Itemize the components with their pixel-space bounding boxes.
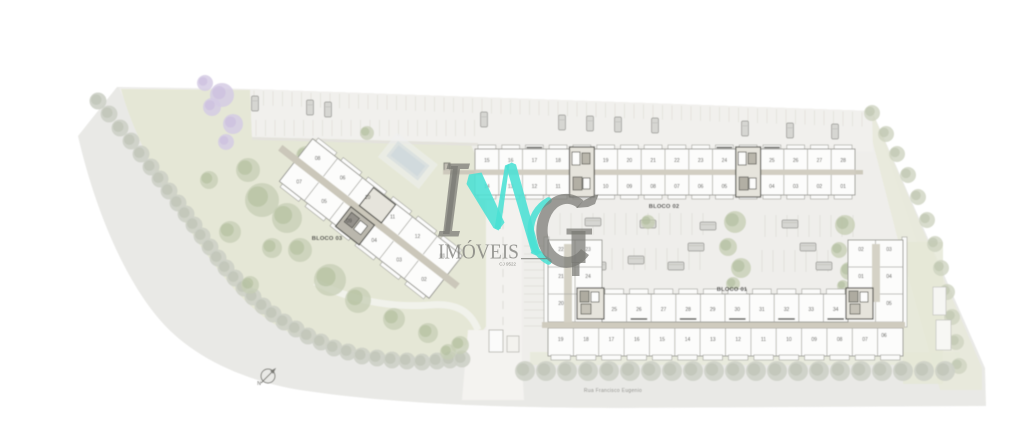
svg-text:33: 33	[808, 307, 814, 313]
svg-text:Rua Francisco Eugenio: Rua Francisco Eugenio	[584, 388, 642, 394]
svg-text:25: 25	[769, 158, 775, 164]
svg-text:IMÓVEIS: IMÓVEIS	[438, 240, 519, 264]
svg-text:17: 17	[609, 337, 615, 343]
svg-text:09: 09	[346, 219, 352, 225]
svg-text:31: 31	[759, 307, 765, 313]
svg-text:11: 11	[390, 214, 395, 220]
svg-text:19: 19	[558, 337, 564, 343]
svg-text:06: 06	[881, 333, 887, 339]
svg-text:06: 06	[340, 175, 346, 181]
svg-text:30: 30	[735, 307, 741, 313]
svg-text:04: 04	[371, 238, 377, 244]
svg-text:28: 28	[685, 307, 691, 313]
svg-text:01: 01	[840, 184, 846, 190]
svg-text:24: 24	[585, 274, 591, 280]
svg-text:22: 22	[674, 158, 680, 164]
svg-text:03: 03	[396, 258, 402, 264]
svg-text:11: 11	[555, 184, 560, 190]
svg-text:08: 08	[837, 337, 843, 343]
svg-text:15: 15	[484, 158, 490, 164]
svg-text:28: 28	[840, 158, 846, 164]
svg-text:06: 06	[698, 184, 704, 190]
svg-text:14: 14	[685, 337, 691, 343]
svg-text:18: 18	[555, 158, 561, 164]
svg-text:21: 21	[650, 158, 656, 164]
svg-text:11: 11	[761, 337, 766, 343]
svg-text:13: 13	[710, 337, 716, 343]
svg-text:05: 05	[886, 301, 892, 307]
svg-text:27: 27	[817, 158, 823, 164]
svg-text:19: 19	[603, 158, 609, 164]
svg-text:09: 09	[811, 337, 817, 343]
svg-text:32: 32	[784, 307, 790, 313]
svg-text:BLOCO 01: BLOCO 01	[717, 287, 748, 293]
svg-text:16: 16	[634, 337, 640, 343]
svg-text:08: 08	[650, 184, 656, 190]
svg-text:03: 03	[886, 247, 892, 253]
svg-text:BLOCO 02: BLOCO 02	[649, 204, 680, 210]
svg-text:10: 10	[786, 337, 792, 343]
svg-text:34: 34	[833, 307, 839, 313]
svg-text:02: 02	[817, 184, 823, 190]
svg-text:07: 07	[296, 180, 302, 186]
svg-text:17: 17	[532, 158, 538, 164]
svg-text:02: 02	[421, 277, 427, 283]
svg-text:18: 18	[583, 337, 589, 343]
svg-text:02: 02	[858, 247, 864, 253]
svg-text:20: 20	[558, 301, 564, 307]
svg-text:26: 26	[636, 307, 642, 313]
svg-text:BLOCO 03: BLOCO 03	[312, 236, 343, 242]
svg-text:04: 04	[769, 184, 775, 190]
svg-text:21: 21	[558, 274, 564, 280]
svg-text:04: 04	[886, 274, 892, 280]
svg-text:23: 23	[698, 158, 704, 164]
svg-text:05: 05	[321, 199, 327, 205]
svg-text:07: 07	[674, 184, 680, 190]
svg-text:27: 27	[661, 307, 667, 313]
svg-text:07: 07	[862, 337, 868, 343]
svg-text:CJ 9522: CJ 9522	[499, 262, 516, 267]
svg-text:23: 23	[585, 247, 591, 253]
svg-text:10: 10	[603, 184, 609, 190]
svg-text:05: 05	[722, 184, 728, 190]
svg-text:12: 12	[532, 184, 538, 190]
svg-text:24: 24	[722, 158, 728, 164]
svg-text:22: 22	[558, 247, 564, 253]
svg-text:09: 09	[627, 184, 633, 190]
svg-text:25: 25	[612, 307, 618, 313]
svg-text:26: 26	[793, 158, 799, 164]
svg-text:15: 15	[659, 337, 665, 343]
svg-text:03: 03	[793, 184, 799, 190]
svg-text:12: 12	[415, 234, 421, 240]
svg-text:20: 20	[627, 158, 633, 164]
svg-text:10: 10	[365, 195, 371, 201]
svg-text:08: 08	[315, 156, 321, 162]
svg-text:29: 29	[710, 307, 716, 313]
svg-text:12: 12	[735, 337, 741, 343]
svg-text:01: 01	[858, 274, 864, 280]
svg-text:N: N	[257, 381, 261, 387]
